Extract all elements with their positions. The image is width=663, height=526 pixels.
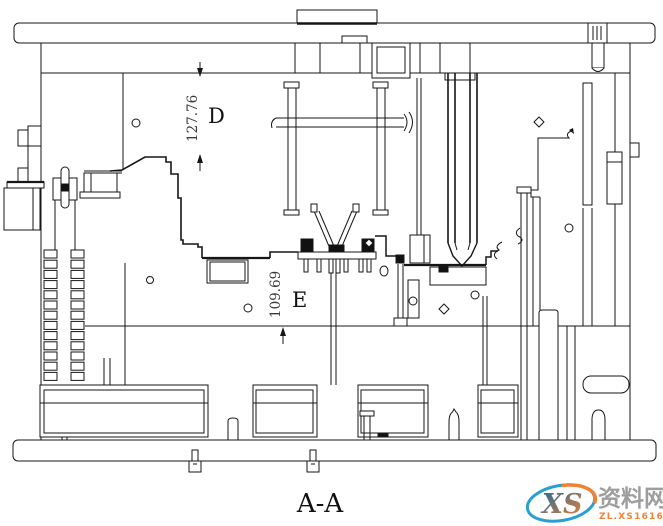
spring-coil	[71, 291, 84, 299]
spring-coil	[44, 362, 57, 370]
spring-coil	[71, 250, 84, 258]
spring-coil	[44, 332, 57, 340]
section-label: A-A	[296, 489, 345, 519]
spring-coil	[71, 270, 84, 278]
spring-coil	[71, 362, 84, 370]
spring-coil	[44, 372, 57, 380]
spring-coil	[44, 281, 57, 289]
spring-coil	[71, 352, 84, 360]
spring-coil	[71, 321, 84, 329]
spring-coil	[44, 352, 57, 360]
watermark-site-name: 资料网	[598, 486, 663, 512]
spring-coil	[44, 311, 57, 319]
watermark-site-url: ZL.XS1616.COM	[599, 512, 663, 522]
dimension-label-e: E	[292, 288, 307, 312]
support-pillar	[535, 310, 562, 460]
dimension-value-e: 109.69	[268, 271, 284, 318]
spring-coil	[44, 301, 57, 309]
dimension-value-d: 127.76	[185, 95, 201, 142]
spring-coil	[71, 332, 84, 340]
spring-coil	[44, 291, 57, 299]
spring-coil	[71, 372, 84, 380]
spring-coil	[44, 270, 57, 278]
section-view-canvas: 127.76 D 109.69 E A-A XS 资料网 ZL.XS1616.C…	[0, 0, 663, 526]
bottom-clamp-plate	[13, 440, 656, 461]
spring-coil	[44, 342, 57, 350]
logo-xs-text: XS	[540, 489, 582, 520]
spring-coil	[71, 301, 84, 309]
spring-coil	[71, 311, 84, 319]
locating-block	[297, 10, 377, 23]
spring-coil	[44, 250, 57, 258]
dimension-label-d: D	[208, 104, 225, 128]
spring-coil	[71, 342, 84, 350]
spring-coil	[71, 281, 84, 289]
engineering-drawing: 127.76 D 109.69 E A-A XS 资料网 ZL.XS1616.C…	[0, 0, 663, 526]
spring-coil	[44, 260, 57, 268]
spring-coil	[44, 321, 57, 329]
spring-coil	[71, 260, 84, 268]
